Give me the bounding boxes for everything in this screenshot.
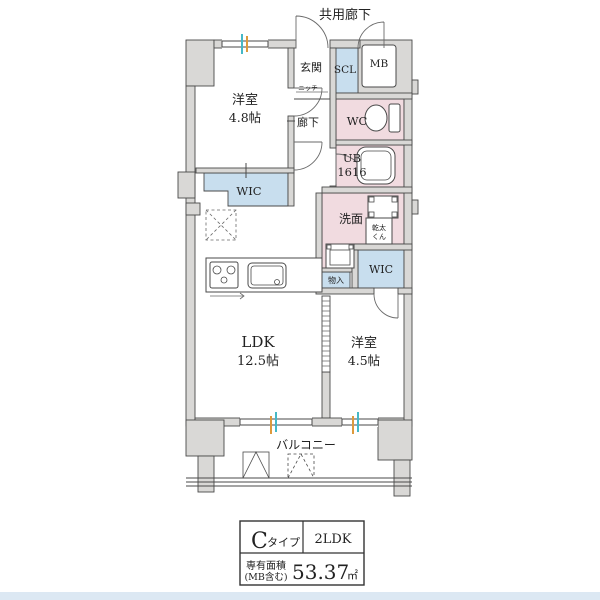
wall-segment (330, 40, 360, 48)
wall-segment (316, 288, 374, 294)
wall-segment (322, 268, 352, 272)
wall-segment (352, 244, 412, 250)
scl-label: SCL (334, 64, 356, 76)
wall-segment (186, 86, 195, 426)
wall-segment (412, 80, 418, 94)
fridge-space-icon (206, 210, 236, 240)
partition-box (288, 454, 314, 478)
balcony-label: バルコニー (276, 438, 336, 452)
balcony-pillar-left (186, 420, 224, 456)
hallway-label: 廊下 (297, 115, 319, 129)
info-table: C タイプ 2LDK 専有面積 (MB含む) 53.37 ㎡ (240, 521, 364, 585)
wall-segment (336, 140, 412, 145)
wall-segment (288, 48, 294, 88)
wall-segment (178, 172, 195, 198)
toilet-bowl (365, 105, 387, 131)
wall-segment (322, 187, 412, 193)
counter-arrow (210, 293, 244, 299)
bedroom2-name: 洋室 (351, 335, 377, 351)
evacuation-hatch-icon (243, 452, 269, 478)
balcony-railing (186, 478, 412, 486)
floor-plan-svg: 共用廊下 玄関 ニッチ SCL MB WC 廊下 洋室 4.8帖 WIC UB … (0, 0, 600, 600)
bath-name: UB (343, 151, 361, 165)
wall-segment (330, 48, 336, 148)
bath-size: 1616 (337, 165, 366, 179)
vanity-counter (368, 196, 398, 218)
hatch-box (243, 452, 269, 478)
wall-segment (196, 168, 294, 173)
hatch-triangle (243, 452, 269, 478)
mb-label: MB (370, 58, 389, 70)
wic-lower-label: WIC (369, 263, 393, 276)
toilet-icon (365, 104, 400, 132)
toilet-tank (389, 104, 400, 132)
vanity-icon (368, 196, 398, 218)
wall-segment (288, 116, 294, 173)
wc-label: WC (347, 114, 368, 128)
wall-segment (186, 203, 200, 215)
bedroom1-name: 洋室 (232, 92, 258, 108)
balcony-pillar-right (378, 420, 412, 460)
dryer-label-line1: 乾太 (372, 223, 386, 232)
wall-segment (288, 173, 294, 206)
sink-icon (248, 263, 286, 288)
ldk-name: LDK (241, 333, 275, 351)
area-label: 専有面積 (246, 559, 286, 572)
sliding-partition (322, 296, 330, 372)
wall-segment (266, 40, 296, 48)
storage-label: 物入 (328, 275, 344, 285)
common-corridor-label: 共用廊下 (319, 7, 371, 23)
stove-icon (210, 262, 238, 288)
window-top (222, 34, 268, 54)
type-letter: C (251, 529, 268, 554)
floor-plan-page: 共用廊下 玄関 ニッチ SCL MB WC 廊下 洋室 4.8帖 WIC UB … (0, 0, 600, 600)
bedroom2-size: 4.5帖 (348, 353, 380, 368)
wall-segment (412, 200, 418, 214)
washer-pan-icon (326, 244, 354, 268)
hallway-door-arc (294, 142, 322, 170)
dryer-label-line2: くん (372, 233, 386, 241)
area-value: 53.37 (292, 560, 349, 584)
entrance-label: 玄関 (300, 60, 322, 74)
partition-panel-icon (288, 454, 314, 478)
washroom-label: 洗面 (339, 212, 363, 226)
wall-segment (186, 40, 214, 86)
wall-segment (312, 418, 342, 426)
area-unit: ㎡ (347, 569, 358, 582)
wall-segment (330, 93, 412, 99)
partition-triangle (288, 454, 314, 478)
area-note: (MB含む) (244, 571, 287, 583)
type-suffix: タイプ (267, 536, 300, 549)
wall-segment (316, 193, 322, 264)
wic-upper-label: WIC (236, 184, 261, 198)
balcony-pillar-left-leg (198, 456, 214, 492)
layout-value: 2LDK (314, 532, 351, 547)
window-ldk (240, 412, 312, 434)
bedroom2-door-arc (374, 294, 398, 318)
wall-segment (322, 372, 330, 418)
footer-strip (0, 592, 600, 600)
fridge-space-cross (206, 210, 236, 240)
kitchen-counter (206, 258, 322, 299)
wall-segment (398, 288, 412, 294)
niche-label: ニッチ (298, 84, 318, 92)
window-bedroom2 (342, 412, 378, 434)
bedroom1-size: 4.8帖 (229, 110, 261, 125)
ldk-size: 12.5帖 (237, 354, 279, 369)
